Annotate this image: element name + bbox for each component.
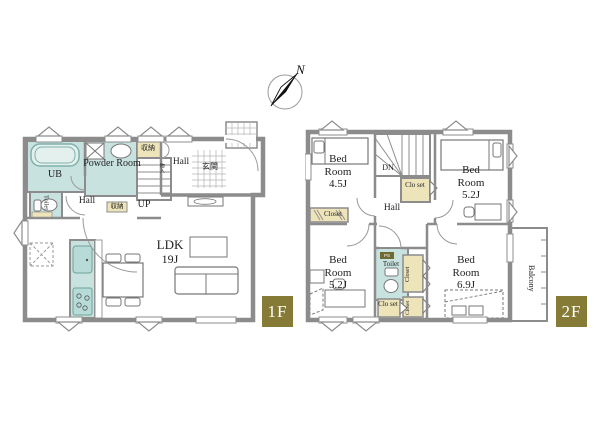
floor1-badge: 1F xyxy=(262,296,293,327)
f1-kitchen-sink-icon xyxy=(73,246,92,273)
toilet-2f-badge: PS xyxy=(380,252,394,259)
storage-top-label: 収納 xyxy=(135,144,161,152)
storage-small-label: 物入 xyxy=(158,161,164,175)
bedroom-ne-name: Bed Room xyxy=(451,164,491,189)
closet-east-lower-label: Closet xyxy=(405,297,411,319)
room-label-ldk: LDK 19J xyxy=(146,238,194,267)
floor2-badge: 2F xyxy=(556,296,587,327)
bedroom-nw-size: 4.5J xyxy=(318,178,358,191)
room-label-ub: UB xyxy=(37,169,73,181)
f1-washer-icon xyxy=(86,143,104,159)
room-label-entrance: 玄関 xyxy=(194,162,226,171)
closet-east-upper-label: Closet xyxy=(405,256,412,292)
f2-bed-se xyxy=(445,290,503,318)
f2-desk-ne xyxy=(464,204,501,220)
room-label-hall-lower: Hall xyxy=(70,196,104,207)
f1-sofa-icon xyxy=(175,267,238,294)
f1-bathtub-icon xyxy=(31,144,79,166)
stairs-up-label: UP xyxy=(131,199,157,211)
room-label-hall-upper: Hall xyxy=(164,157,198,168)
room-label-bedroom-se: Bed Room 6.9J xyxy=(446,254,486,292)
floor2-plan-drawing xyxy=(305,118,595,332)
f1-stove-icon xyxy=(73,288,92,315)
bedroom-se-size: 6.9J xyxy=(446,279,486,292)
f1-counter-edge xyxy=(95,240,102,318)
balcony-label: Balcony xyxy=(527,250,536,306)
room-label-bedroom-ne: Bed Room 5.2J xyxy=(451,164,491,202)
closet-stairs-label: Clo set xyxy=(404,181,426,189)
f1-dining-set xyxy=(103,254,143,306)
room-label-bedroom-nw: Bed Room 4.5J xyxy=(318,153,358,191)
floor-plan-image: N xyxy=(0,0,600,440)
storage-hall-label: 収納 xyxy=(106,203,128,210)
room-label-bedroom-sw: Bed Room 5.2J xyxy=(318,254,358,292)
bedroom-ne-size: 5.2J xyxy=(451,189,491,202)
f1-low-table xyxy=(190,237,227,257)
ldk-name: LDK xyxy=(146,238,194,253)
stairs-dn-label: DN xyxy=(378,163,398,172)
bedroom-se-name: Bed Room xyxy=(446,254,486,279)
f1-fridge-space xyxy=(30,243,53,266)
ldk-size: 19J xyxy=(146,253,194,267)
room-label-powder: Powder Room xyxy=(81,158,143,170)
compass-icon xyxy=(252,58,322,122)
room-label-toilet-2f: Toilet xyxy=(376,260,406,268)
bedroom-sw-name: Bed Room xyxy=(318,254,358,279)
f1-cabinet-icon xyxy=(188,197,223,206)
bedroom-sw-size: 5.2J xyxy=(318,279,358,292)
closet-toilet-label: Clo set xyxy=(378,300,398,308)
bedroom-nw-name: Bed Room xyxy=(318,153,358,178)
closet-nw-label: Closet xyxy=(311,210,355,218)
f1-sink-icon xyxy=(111,144,131,158)
room-label-toilet-1f: Toilet xyxy=(42,189,49,216)
room-label-hall-2f: Hall xyxy=(378,203,406,214)
compass-north-label: N xyxy=(296,62,305,78)
